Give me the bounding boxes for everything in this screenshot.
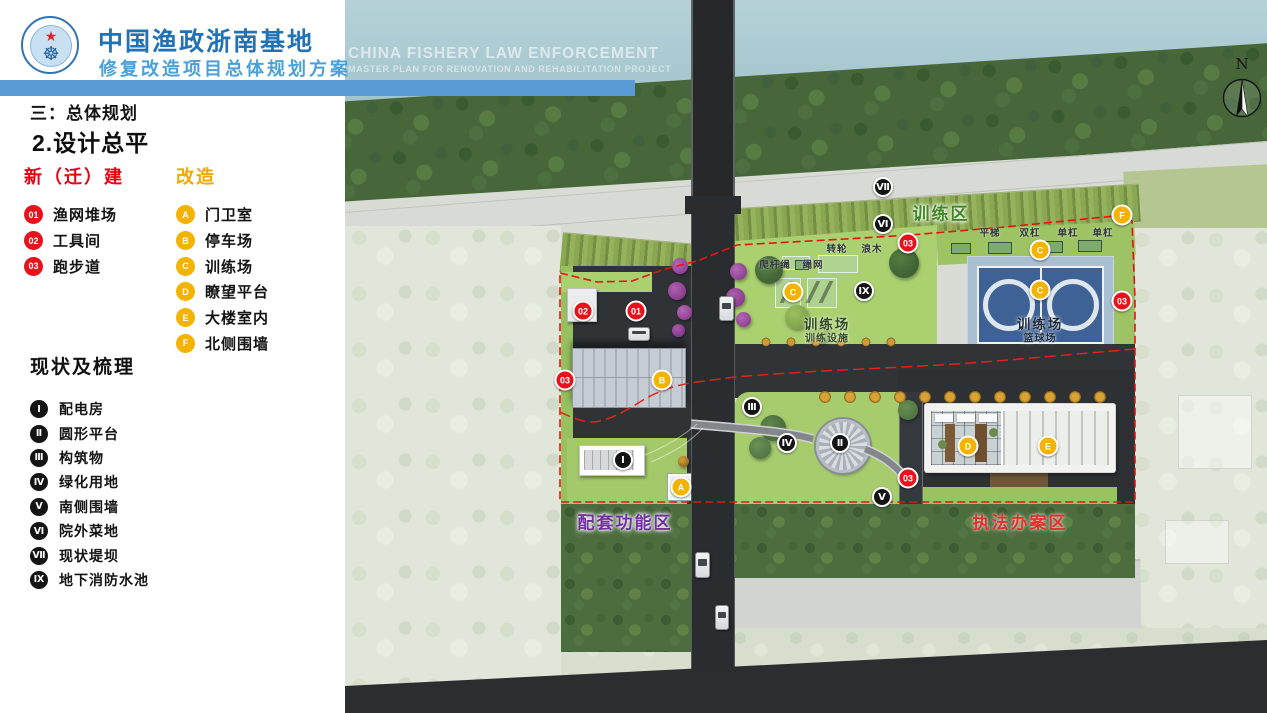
orange-tree-row-building	[815, 388, 1115, 406]
map-badge-Ⅴ: Ⅴ	[872, 487, 892, 507]
legend-status-items: Ⅰ配电房Ⅱ圆形平台Ⅲ构筑物Ⅳ绿化用地Ⅴ南侧围墙Ⅵ院外菜地Ⅶ现状堤坝Ⅸ地下消防水池	[30, 397, 260, 592]
map-badge-Ⅱ: Ⅱ	[830, 433, 850, 453]
map-badge-03: 03	[555, 370, 576, 391]
legend-item: 01渔网堆场	[24, 202, 169, 228]
map-badge-03: 03	[898, 468, 919, 489]
map-badge-D: D	[958, 436, 979, 457]
legend-new-built: 新（迁）建 01渔网堆场02工具间03跑步道	[24, 163, 169, 279]
legend-badge-Ⅴ: Ⅴ	[30, 498, 48, 516]
legend-item: Ⅴ南侧围墙	[30, 495, 260, 519]
legend-item-label: 瞭望平台	[205, 281, 269, 302]
car-road-south	[715, 605, 729, 630]
legend-item: Ⅸ地下消防水池	[30, 568, 260, 592]
atrium-plant-1	[938, 440, 947, 449]
map-badge-Ⅳ: Ⅳ	[777, 433, 797, 453]
map-badge-B: B	[652, 370, 673, 391]
map-badge-Ⅶ: Ⅶ	[873, 177, 893, 197]
slide: N 020103030303ABCCCDEFⅦⅥⅨⅢⅣⅡⅤⅠ 训练区配套功能区执…	[0, 0, 1267, 713]
legend-new-items: 01渔网堆场02工具间03跑步道	[24, 202, 169, 279]
legend-badge-Ⅳ: Ⅳ	[30, 473, 48, 491]
map-badge-03: 03	[898, 233, 919, 254]
bridge-segment	[691, 0, 735, 196]
brown-strip	[990, 470, 1048, 487]
legend-item-label: 现状堤坝	[59, 546, 119, 566]
car-road-north	[719, 296, 734, 321]
equipment-mat-parallel-bars	[988, 242, 1012, 254]
legend-item: E大楼室内	[176, 305, 341, 331]
orange-bush-gate	[678, 456, 689, 467]
legend-item: Ⅱ圆形平台	[30, 421, 260, 445]
page-title-english: CHINA FISHERY LAW ENFORCEMENT	[348, 45, 659, 63]
legend-item: Ⅲ构筑物	[30, 446, 260, 470]
atrium-plant-2	[989, 428, 998, 437]
map-badge-F: F	[1112, 205, 1133, 226]
equipment-mat-highbar-2	[1078, 240, 1102, 252]
equipment-label: 转轮	[826, 241, 847, 255]
legend-status-title: 现状及梳理	[30, 352, 260, 379]
purple-tree-1	[672, 258, 688, 274]
purple-tree-4	[672, 324, 685, 337]
legend-item: A门卫室	[176, 202, 341, 228]
legend-item-label: 地下消防水池	[59, 570, 149, 590]
faded-area-west	[345, 226, 561, 713]
area-label: 训练设施	[805, 330, 849, 345]
map-badge-01: 01	[626, 301, 647, 322]
legend-item: Ⅵ院外菜地	[30, 519, 260, 543]
purple-tree-3	[677, 305, 692, 320]
legend-badge-Ⅶ: Ⅶ	[30, 547, 48, 565]
legend-badge-Ⅱ: Ⅱ	[30, 425, 48, 443]
legend-item-label: 南侧围墙	[59, 497, 119, 517]
map-badge-A: A	[671, 477, 692, 498]
map-badge-C: C	[1030, 280, 1051, 301]
star-icon: ★	[31, 29, 71, 43]
legend-item-label: 工具间	[53, 230, 101, 251]
legend-item: Ⅶ现状堤坝	[30, 543, 260, 567]
area-label: 篮球场	[1024, 330, 1057, 345]
equipment-label: 浪木	[861, 241, 882, 255]
zone-label: 配套功能区	[578, 509, 673, 534]
atrium-white-panel-2	[957, 414, 975, 422]
equipment-label: 双杠	[1019, 225, 1040, 239]
legend-badge-C: C	[176, 257, 195, 276]
page-title: 中国渔政浙南基地	[98, 22, 314, 58]
legend-existing-status: 现状及梳理 Ⅰ配电房Ⅱ圆形平台Ⅲ构筑物Ⅳ绿化用地Ⅴ南侧围墙Ⅵ院外菜地Ⅶ现状堤坝Ⅸ…	[30, 352, 260, 592]
legend-badge-01: 01	[24, 205, 43, 224]
equipment-label: 单杠	[1057, 225, 1078, 239]
legend-item-label: 停车场	[205, 230, 253, 251]
map-badge-02: 02	[573, 301, 594, 322]
page-subtitle: 修复改造项目总体规划方案	[99, 55, 351, 81]
road-intersection	[685, 196, 741, 214]
legend-item: 02工具间	[24, 228, 169, 254]
legend-badge-Ⅸ: Ⅸ	[30, 571, 48, 589]
site-plan-map: N 020103030303ABCCCDEFⅦⅥⅨⅢⅣⅡⅤⅠ 训练区配套功能区执…	[345, 0, 1267, 713]
equipment-label: 平梯	[979, 225, 1000, 239]
atrium-white-panel-1	[935, 414, 953, 422]
map-badge-Ⅸ: Ⅸ	[854, 281, 874, 301]
map-badge-C: C	[783, 282, 804, 303]
section-title: 2.设计总平	[32, 124, 149, 158]
legend-badge-D: D	[176, 282, 195, 301]
faded-building-east-1	[1178, 395, 1252, 469]
legend-item-label: 北侧围墙	[205, 333, 269, 354]
legend-new-title: 新（迁）建	[24, 163, 169, 189]
legend-item-label: 训练场	[205, 256, 253, 277]
map-badge-Ⅰ: Ⅰ	[613, 450, 633, 470]
compass-north-label: N	[1229, 55, 1255, 73]
legend-reno-title: 改造	[176, 163, 341, 189]
legend-item-label: 绿化用地	[59, 472, 119, 492]
legend-badge-E: E	[176, 308, 195, 327]
legend-badge-Ⅵ: Ⅵ	[30, 522, 48, 540]
equipment-logbeam	[818, 255, 858, 273]
faded-building-east-2	[1165, 520, 1229, 564]
purple-tree-5	[730, 263, 747, 280]
legend-item: C训练场	[176, 253, 341, 279]
legend-item-label: 大楼室内	[205, 307, 269, 328]
legend-badge-F: F	[176, 334, 195, 353]
equipment-label: 绳网	[802, 257, 823, 271]
header-accent-bar	[0, 80, 635, 96]
map-badge-Ⅵ: Ⅵ	[873, 214, 893, 234]
green-tree-6	[749, 437, 771, 459]
legend-renovation: 改造 A门卫室B停车场C训练场D瞭望平台E大楼室内F北侧围墙	[176, 163, 341, 356]
ship-wheel-icon: ☸	[31, 45, 71, 65]
zone-label: 执法办案区	[973, 509, 1068, 534]
logo-inner-circle: ★ ☸	[30, 25, 72, 67]
legend-badge-03: 03	[24, 257, 43, 276]
zone-label: 训练区	[913, 200, 970, 225]
purple-tree-7	[736, 312, 751, 327]
agency-logo: ★ ☸	[21, 16, 79, 74]
car-yard	[628, 327, 650, 341]
legend-item-label: 门卫室	[205, 204, 253, 225]
south-green-strip	[923, 487, 1117, 504]
page-subtitle-english: MASTER PLAN FOR RENOVATION AND REHABILIT…	[348, 64, 671, 74]
legend-badge-A: A	[176, 205, 195, 224]
map-badge-C: C	[1030, 240, 1051, 261]
legend-item: B停车场	[176, 228, 341, 254]
legend-badge-B: B	[176, 231, 195, 250]
legend-item: Ⅳ绿化用地	[30, 470, 260, 494]
legend-badge-Ⅰ: Ⅰ	[30, 400, 48, 418]
legend-item-label: 圆形平台	[59, 424, 119, 444]
legend-item-label: 院外菜地	[59, 521, 119, 541]
legend-item: D瞭望平台	[176, 279, 341, 305]
map-badge-Ⅲ: Ⅲ	[742, 397, 762, 417]
car-road-mid	[695, 552, 710, 578]
left-panel: ★ ☸ 中国渔政浙南基地 修复改造项目总体规划方案 三：总体规划 2.设计总平 …	[0, 0, 345, 713]
legend-item-label: 配电房	[59, 399, 104, 419]
legend-badge-02: 02	[24, 231, 43, 250]
equipment-label: 单杠	[1092, 225, 1113, 239]
map-badge-E: E	[1038, 436, 1059, 457]
legend-item: 03跑步道	[24, 253, 169, 279]
legend-item-label: 构筑物	[59, 448, 104, 468]
map-badge-03: 03	[1112, 291, 1133, 312]
legend-item-label: 跑步道	[53, 256, 101, 277]
equipment-mat-ladder	[951, 243, 971, 254]
legend-reno-items: A门卫室B停车场C训练场D瞭望平台E大楼室内F北侧围墙	[176, 202, 341, 356]
legend-item: Ⅰ配电房	[30, 397, 260, 421]
legend-badge-Ⅲ: Ⅲ	[30, 449, 48, 467]
section-number: 三：总体规划	[30, 99, 138, 124]
purple-tree-2	[668, 282, 686, 300]
equipment-label: 爬杆绳	[759, 257, 791, 271]
legend-item-label: 渔网堆场	[53, 204, 117, 225]
atrium-white-panel-3	[979, 414, 997, 422]
